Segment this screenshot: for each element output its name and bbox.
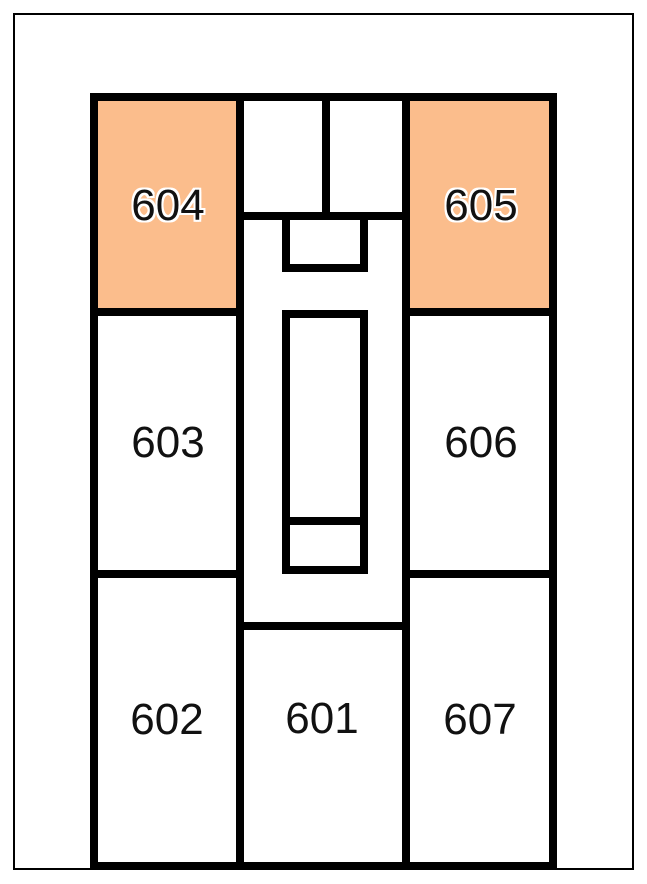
wall-shaft-left bbox=[282, 310, 290, 574]
room-601[interactable] bbox=[244, 630, 402, 862]
wall-604-603-divider bbox=[90, 308, 244, 316]
room-606[interactable] bbox=[410, 316, 549, 570]
vestibule-box bbox=[290, 220, 360, 264]
floorplan-canvas: 604 605 603 606 602 601 607 bbox=[0, 0, 647, 884]
wall-corridor-left bbox=[236, 93, 244, 870]
wall-shaft-top bbox=[282, 310, 368, 318]
room-602[interactable] bbox=[98, 578, 236, 862]
wall-shaft-divider bbox=[282, 517, 368, 525]
elevator-shaft bbox=[290, 318, 360, 517]
room-unlabeled-top-left bbox=[244, 101, 322, 212]
wall-605-606-divider bbox=[402, 308, 557, 316]
wall-vestibule-bottom bbox=[282, 264, 368, 272]
shaft-lower-compartment bbox=[290, 525, 360, 566]
room-603[interactable] bbox=[98, 316, 236, 570]
wall-outer-right bbox=[549, 93, 557, 870]
wall-top-rooms-bottom bbox=[236, 212, 410, 220]
room-607[interactable] bbox=[410, 578, 549, 862]
wall-606-607-divider bbox=[402, 570, 557, 578]
wall-outer-left bbox=[90, 93, 98, 870]
wall-top-rooms-divider bbox=[322, 93, 330, 220]
wall-601-top bbox=[236, 622, 410, 630]
wall-shaft-right bbox=[360, 310, 368, 574]
wall-outer-bottom bbox=[90, 862, 557, 870]
room-604[interactable] bbox=[98, 101, 236, 308]
wall-603-602-divider bbox=[90, 570, 244, 578]
wall-corridor-right bbox=[402, 93, 410, 870]
room-unlabeled-top-right bbox=[330, 101, 402, 212]
wall-shaft-bottom bbox=[282, 566, 368, 574]
room-605[interactable] bbox=[410, 101, 549, 308]
